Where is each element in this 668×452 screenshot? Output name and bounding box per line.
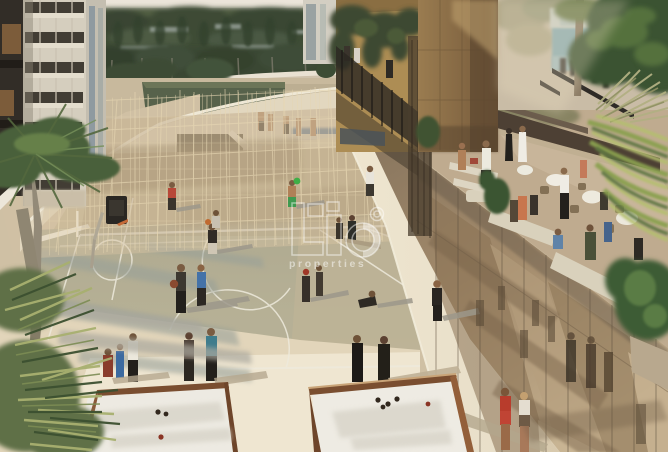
svg-text:properties: properties xyxy=(289,258,366,270)
